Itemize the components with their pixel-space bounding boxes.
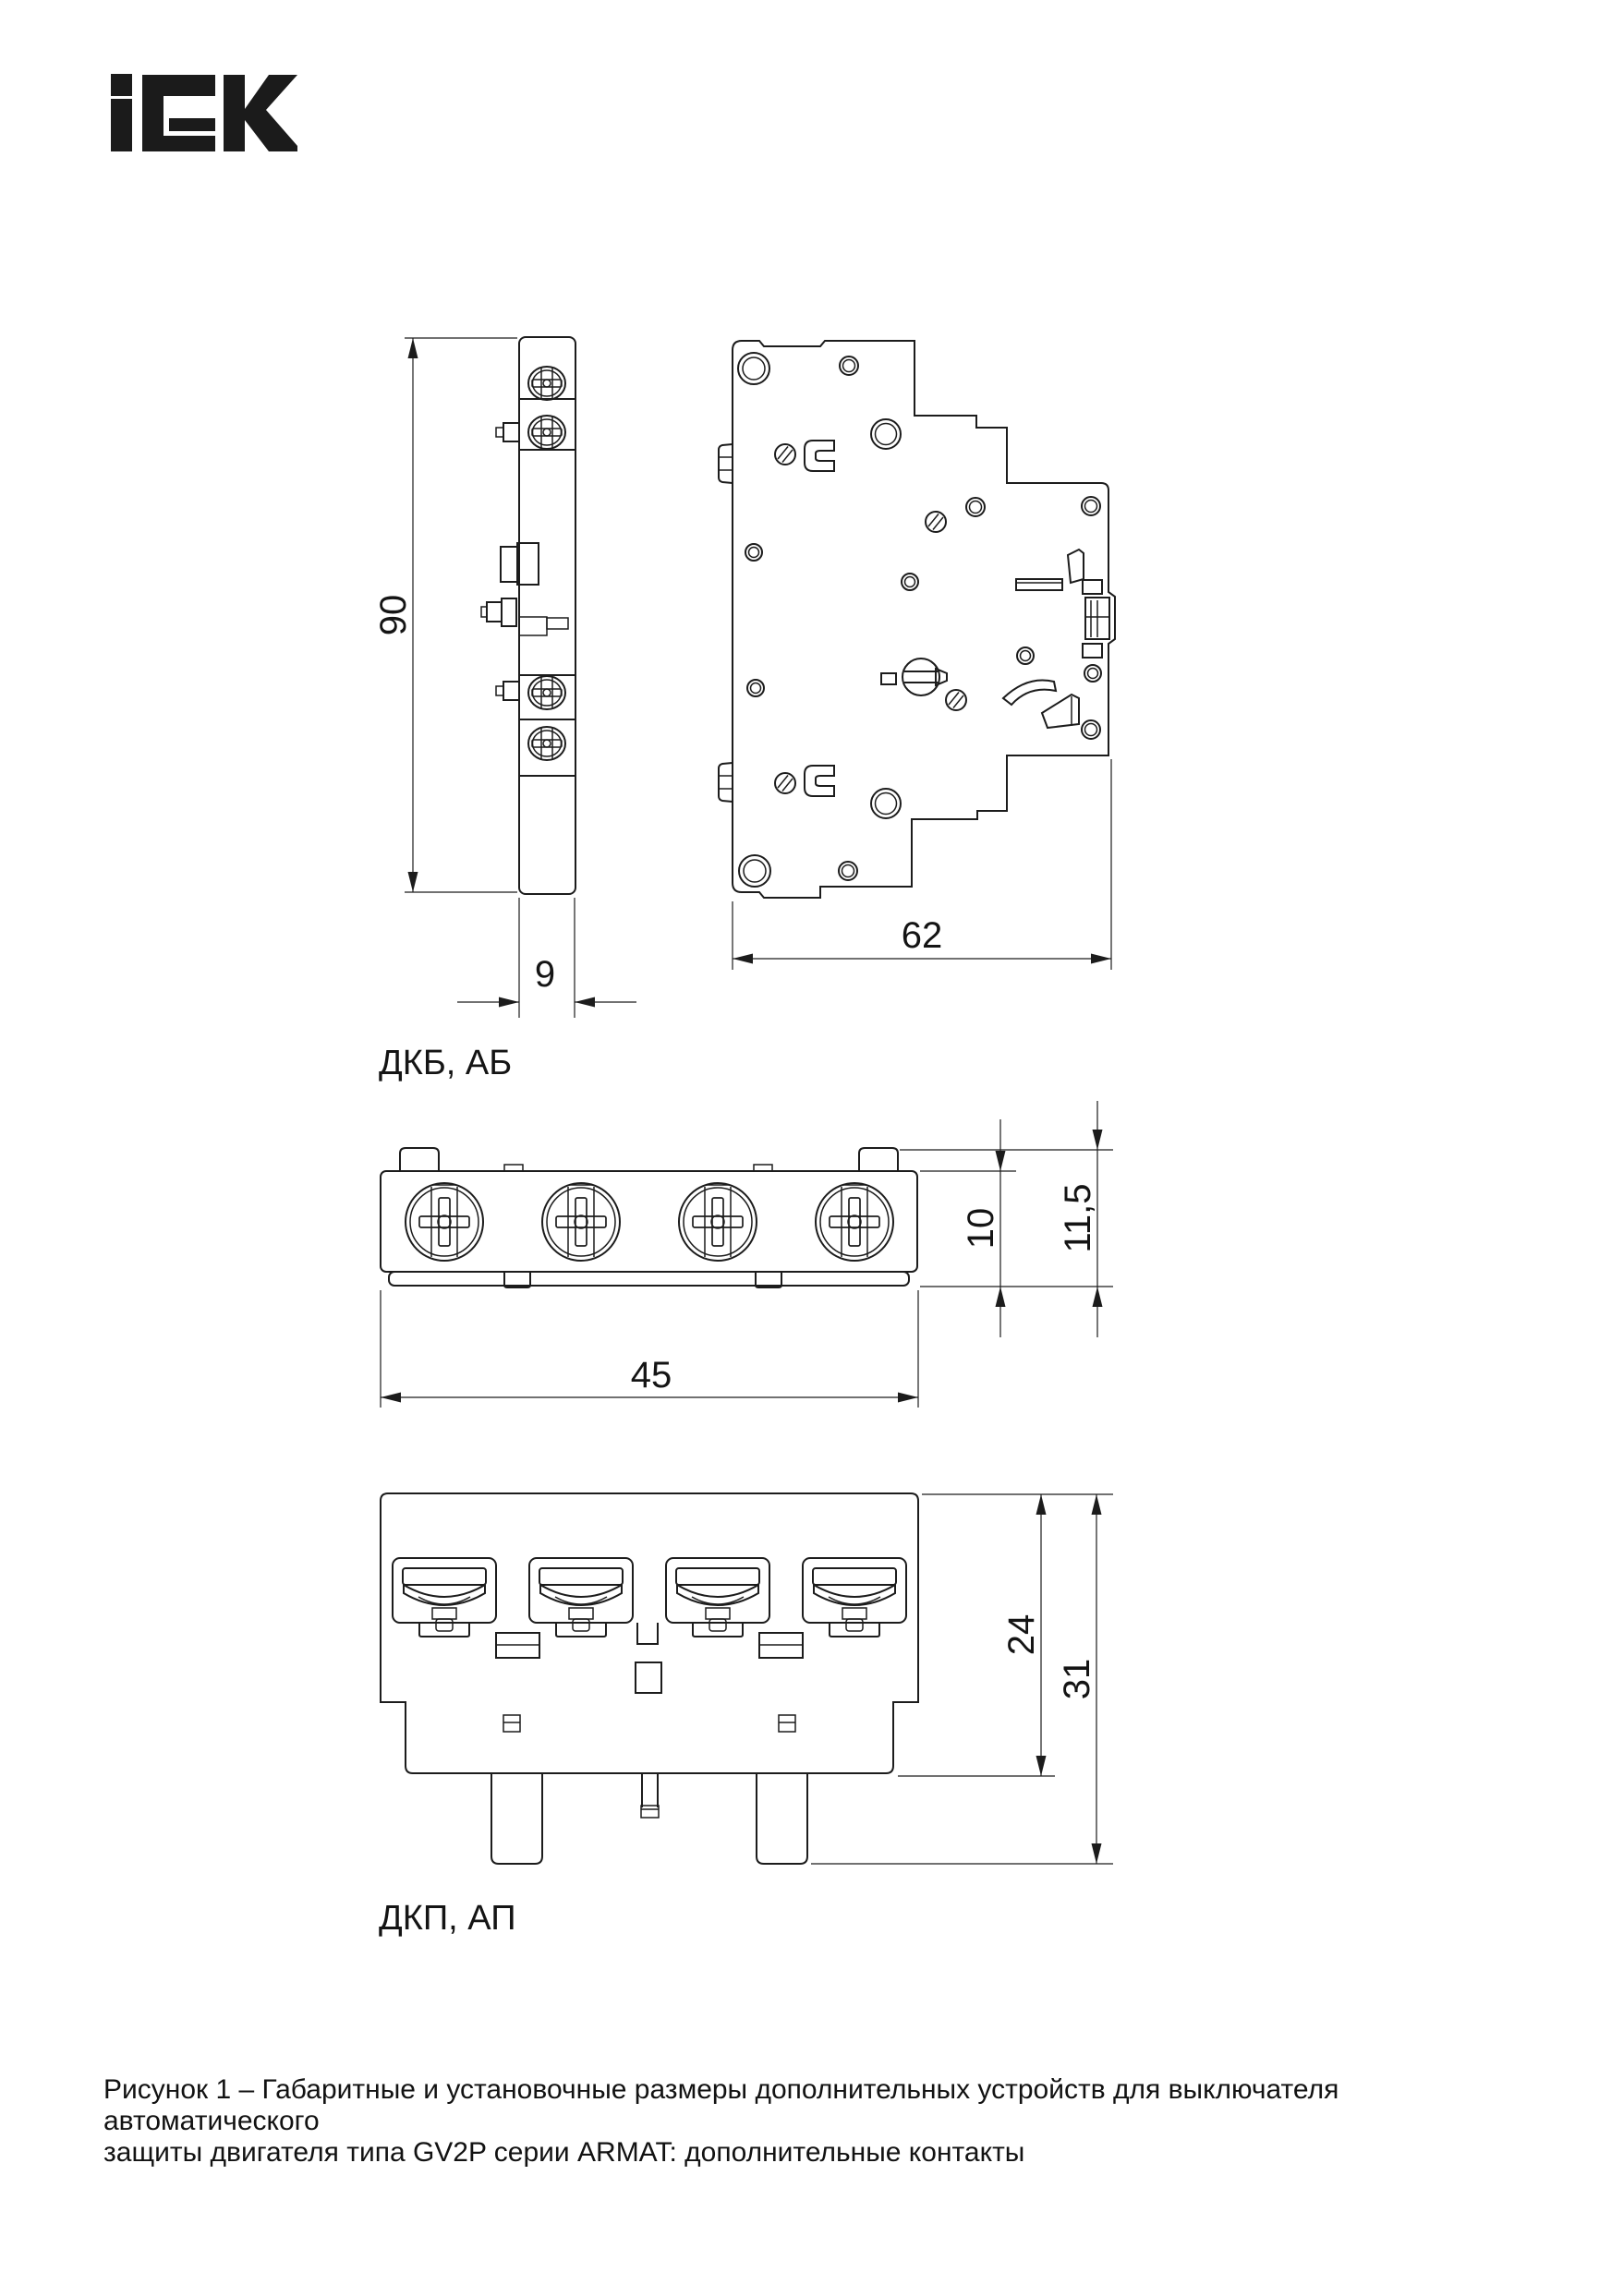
terminal-screw-icon bbox=[528, 416, 565, 449]
dim-value-45: 45 bbox=[631, 1355, 672, 1396]
figure-caption-line2: защиты двигателя типа GV2P серии ARMAT: … bbox=[103, 2137, 1508, 2169]
terminal-screw-icon bbox=[679, 1183, 757, 1261]
dkb-view-label: ДКБ, АБ bbox=[379, 1044, 512, 1082]
dim-value-9: 9 bbox=[535, 954, 555, 995]
dimension-width-9: 9 bbox=[457, 898, 636, 1018]
dim-value-24: 24 bbox=[1001, 1614, 1042, 1656]
figure-caption: Рисунок 1 – Габаритные и установочные ра… bbox=[103, 2074, 1508, 2169]
dimension-width-45: 45 bbox=[381, 1290, 918, 1408]
dim-value-31: 31 bbox=[1057, 1659, 1097, 1700]
dimension-height-31: 31 bbox=[811, 1494, 1113, 1864]
terminal-screw-icon bbox=[816, 1183, 893, 1261]
document-page: IEK bbox=[0, 0, 1611, 2296]
terminal-screw-icon bbox=[542, 1183, 620, 1261]
figure-drawings: 90 9 bbox=[0, 0, 1611, 2296]
dim-value-11-5: 11,5 bbox=[1058, 1184, 1098, 1253]
terminal-screw-icon bbox=[528, 727, 565, 760]
clamp-terminal-icon bbox=[803, 1558, 906, 1637]
dkp-top-view-drawing bbox=[381, 1148, 917, 1287]
mounting-hole-icon bbox=[739, 855, 770, 887]
dimension-height-24: 24 bbox=[898, 1494, 1113, 1776]
slotted-screw-icon bbox=[926, 512, 946, 532]
adjustment-dial-icon bbox=[881, 659, 947, 695]
slotted-screw-icon bbox=[946, 690, 966, 710]
terminal-screw-icon bbox=[406, 1183, 483, 1261]
dimension-height-11-5: 11,5 bbox=[1058, 1101, 1103, 1337]
slotted-screw-icon bbox=[775, 444, 795, 465]
figure-caption-line1: Рисунок 1 – Габаритные и установочные ра… bbox=[103, 2074, 1508, 2137]
dkb-profile-view-drawing bbox=[719, 341, 1115, 898]
dim-value-10: 10 bbox=[961, 1208, 1001, 1250]
dkb-side-view-drawing bbox=[481, 337, 575, 894]
terminal-screw-icon bbox=[528, 676, 565, 709]
dim-value-62: 62 bbox=[902, 915, 943, 956]
clamp-terminal-icon bbox=[393, 1558, 496, 1637]
clamp-terminal-icon bbox=[529, 1558, 633, 1637]
mounting-hole-icon bbox=[738, 353, 769, 384]
clamp-terminal-icon bbox=[666, 1558, 769, 1637]
dimension-depth-62: 62 bbox=[733, 759, 1111, 970]
dkp-front-view-drawing bbox=[381, 1493, 918, 1864]
terminal-screw-icon bbox=[528, 367, 565, 400]
slotted-screw-icon bbox=[775, 773, 795, 793]
dim-value-90: 90 bbox=[373, 595, 414, 636]
dimension-height-90: 90 bbox=[373, 338, 517, 892]
dkp-view-label: ДКП, АП bbox=[379, 1899, 516, 1938]
